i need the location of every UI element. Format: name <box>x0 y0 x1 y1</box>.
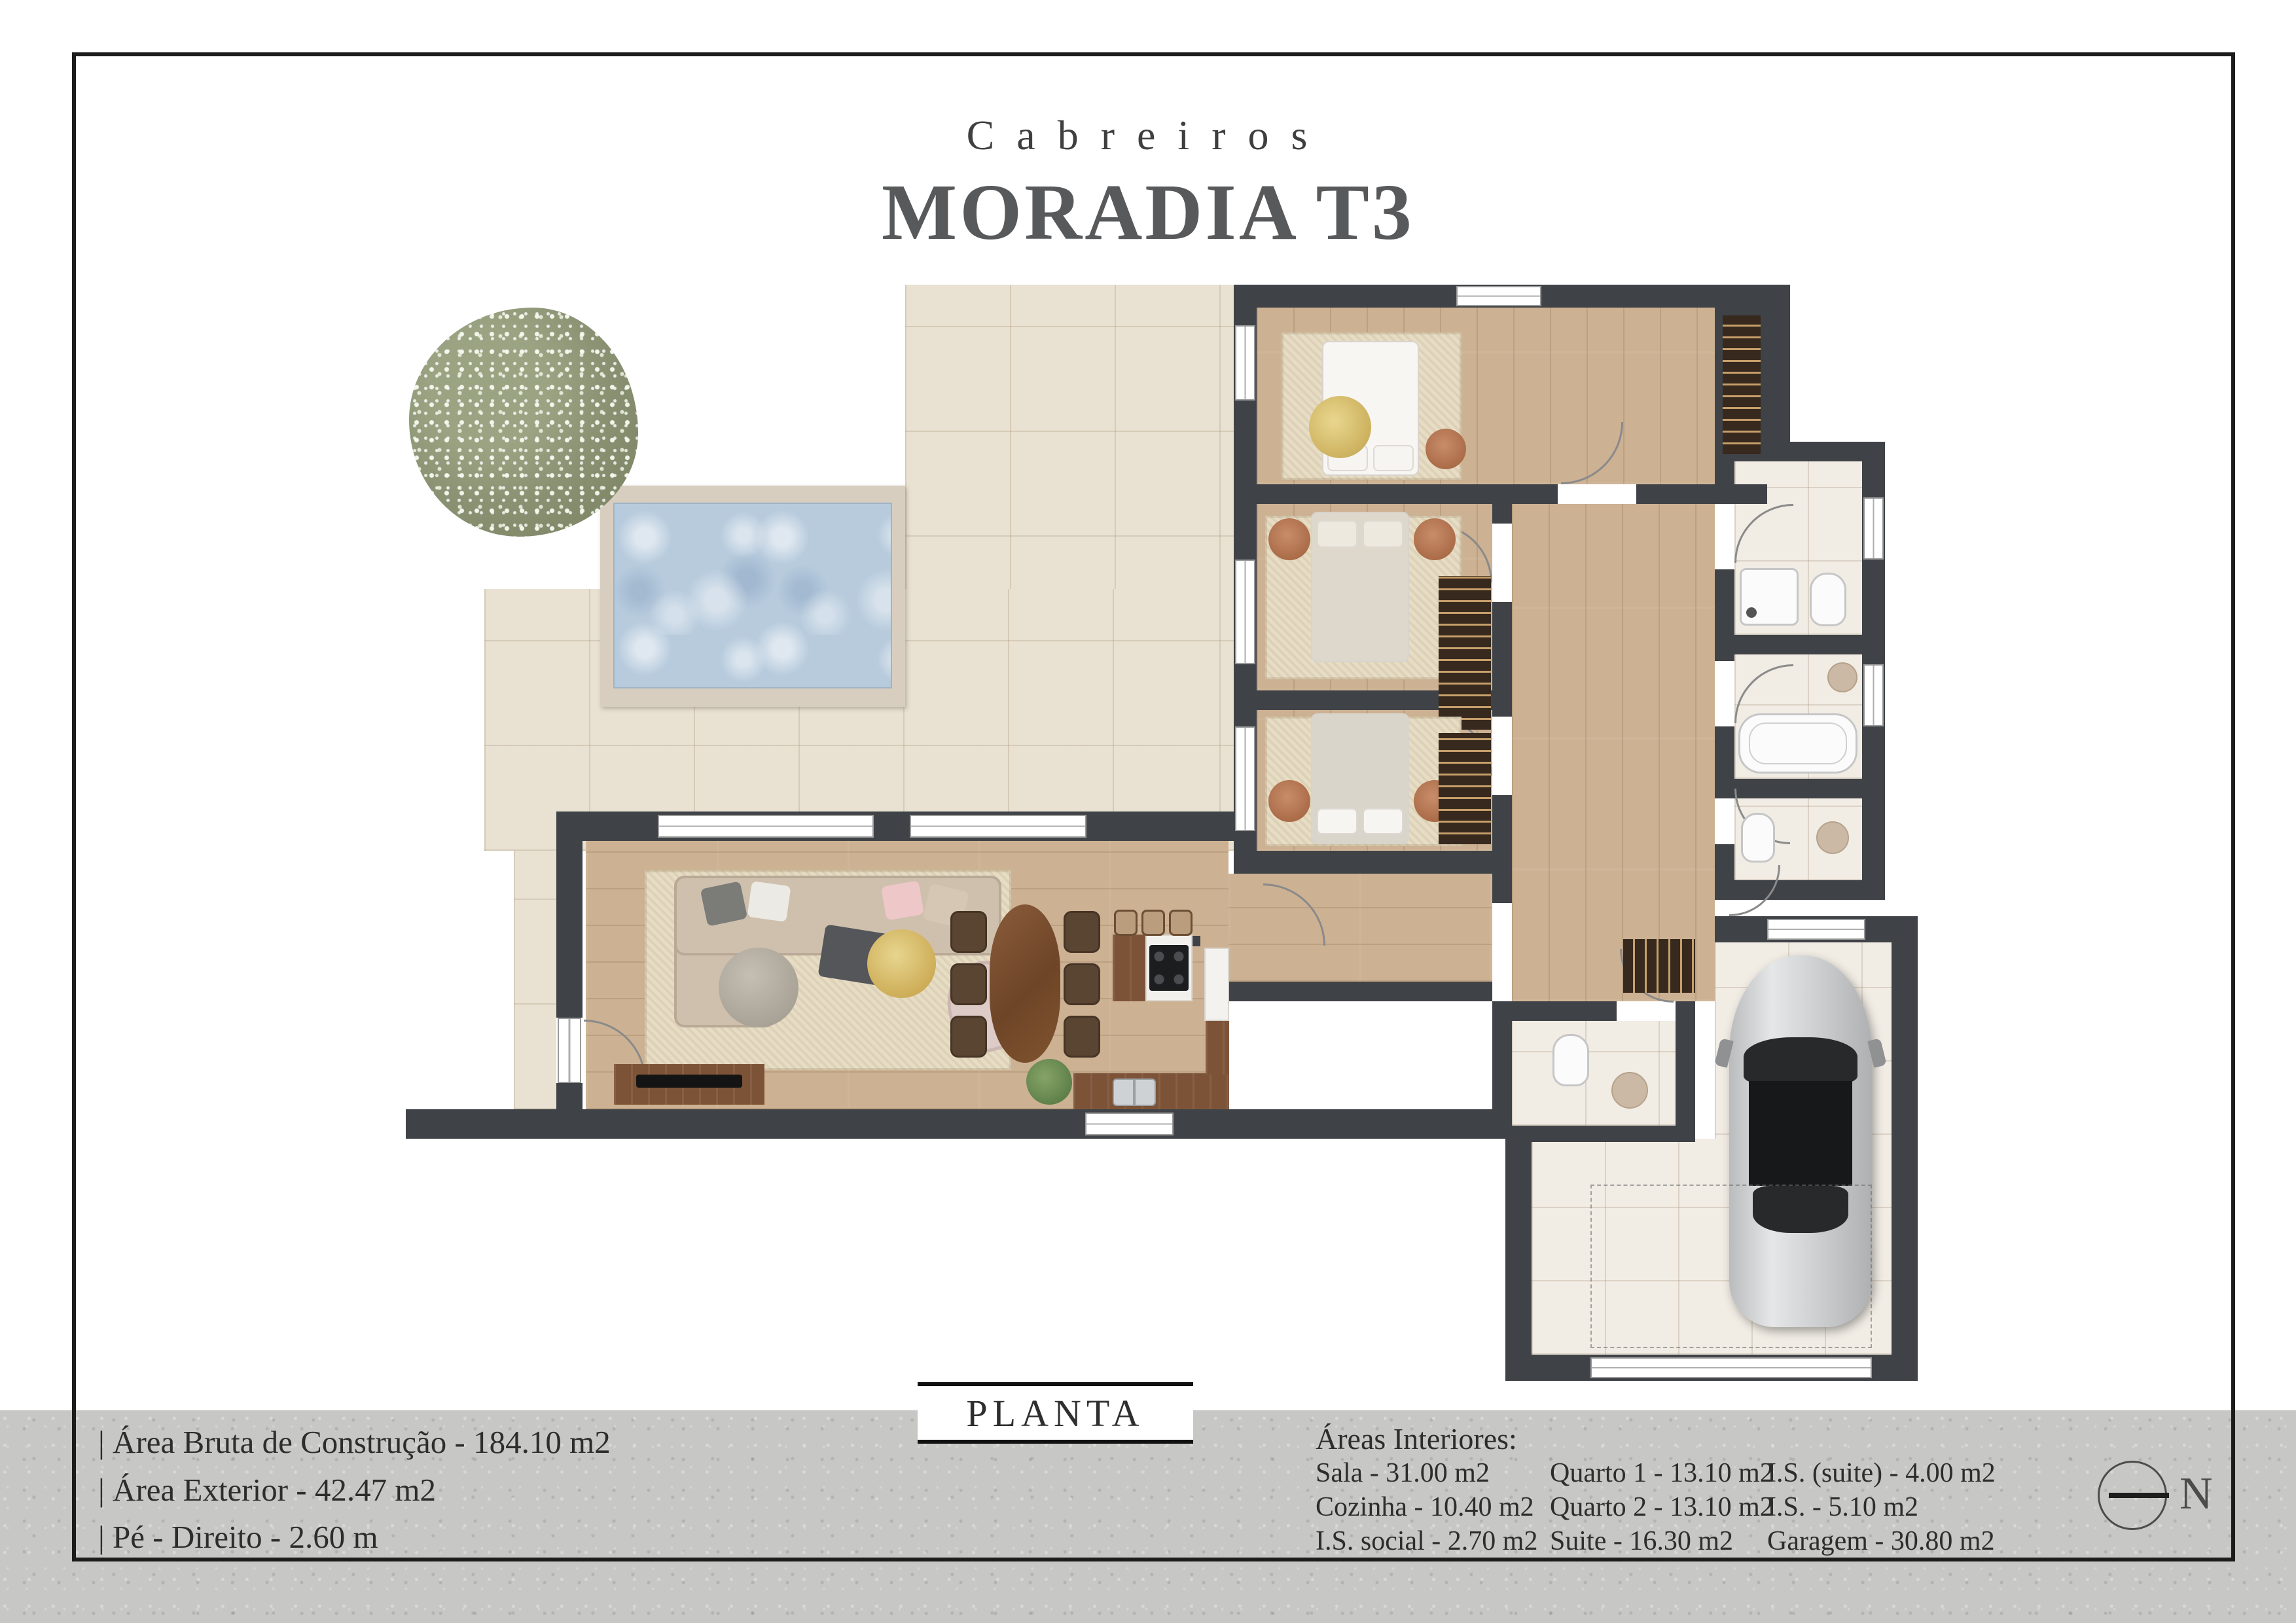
wc-floor <box>1512 1021 1676 1126</box>
sofa-cushion-white <box>747 881 791 922</box>
suite-wardrobe <box>1439 733 1491 844</box>
window-garage-north <box>1767 919 1865 940</box>
areas-column-2: Quarto 1 - 13.10 m2 Quarto 2 - 13.10 m2 … <box>1550 1456 1774 1558</box>
car-roof <box>1749 1081 1852 1186</box>
bedroom-1-wardrobe <box>1723 315 1761 454</box>
spec-gross-area: | Área Bruta de Construção - 184.10 m2 <box>98 1423 884 1463</box>
area-sala: Sala - 31.00 m2 <box>1316 1456 1537 1490</box>
wall-east-upper <box>1767 285 1790 442</box>
spec-exterior-area: | Área Exterior - 42.47 m2 <box>98 1471 884 1510</box>
toilet-bath1 <box>1810 573 1846 626</box>
wall-garage-left <box>1505 1139 1532 1355</box>
wc-basin <box>1611 1072 1648 1109</box>
wall-divider-bd1b <box>1636 484 1767 504</box>
dining-chair-r3 <box>1064 1016 1100 1058</box>
basin-suite-bath <box>1816 821 1849 854</box>
wall-suite-south <box>1257 851 1492 874</box>
patio-notch <box>1229 1001 1492 1109</box>
wall-hall-d <box>1492 1001 1512 1139</box>
entry-closet <box>1623 939 1695 993</box>
suite-pillow-right <box>1363 808 1403 834</box>
area-is: I.S. - 5.10 m2 <box>1767 1490 1996 1524</box>
north-label: N <box>2179 1468 2213 1520</box>
kitchen-island-wood <box>1113 935 1145 1001</box>
dining-chair-r2 <box>1064 963 1100 1005</box>
suite-pillow-left <box>1317 808 1357 834</box>
door-terrace-west <box>558 1018 581 1083</box>
dining-chair-l3 <box>950 1016 987 1058</box>
window-living-north-2 <box>910 815 1086 838</box>
wall-hall-a <box>1492 484 1512 524</box>
window-living-north-1 <box>658 815 874 838</box>
plant <box>1026 1059 1072 1105</box>
floor-plan <box>0 0 2296 1623</box>
bedroom-2-side-table-right <box>1414 518 1456 560</box>
kitchen-sink <box>1113 1079 1156 1106</box>
window-bedroom1-north <box>1456 286 1541 306</box>
suite-side-table-left <box>1268 780 1310 822</box>
area-is-suite: I.S. (suite) - 4.00 m2 <box>1767 1456 1996 1490</box>
area-suite: Suite - 16.30 m2 <box>1550 1524 1774 1558</box>
garage-floor-marking <box>1590 1185 1872 1348</box>
hallway-floor <box>1512 504 1715 1001</box>
window-living-south <box>1085 1113 1174 1135</box>
bedroom-1-pendant-light <box>1309 396 1371 458</box>
bar-stool-1 <box>1114 910 1138 936</box>
refrigerator <box>1204 948 1229 1021</box>
areas-column-3: I.S. (suite) - 4.00 m2 I.S. - 5.10 m2 Ga… <box>1767 1456 1996 1558</box>
tree-blossom-texture <box>409 308 638 537</box>
swimming-pool <box>613 503 892 688</box>
wc-toilet <box>1552 1034 1589 1086</box>
window-bedroom2-west <box>1235 560 1255 664</box>
wall-bathwest-c <box>1715 726 1734 798</box>
area-quarto-2: Quarto 2 - 13.10 m2 <box>1550 1490 1774 1524</box>
basin-bath2 <box>1827 662 1857 692</box>
areas-heading: Áreas Interiores: <box>1316 1421 1517 1456</box>
wall-divider-bd1 <box>1257 484 1558 504</box>
sofa-cushion-pink <box>881 880 924 920</box>
window-bath2-east <box>1863 664 1884 726</box>
wall-notch-top <box>1229 982 1492 1001</box>
north-compass-needle <box>2109 1493 2169 1498</box>
wall-wc-bottom <box>1512 1126 1676 1142</box>
window-bath1-east <box>1863 497 1884 560</box>
areas-column-1: Sala - 31.00 m2 Cozinha - 10.40 m2 I.S. … <box>1316 1456 1537 1558</box>
bedroom-2-pillow-right <box>1363 520 1403 548</box>
wall-bathwest-a <box>1715 461 1734 497</box>
shower-drain <box>1746 607 1757 618</box>
dining-chair-l2 <box>950 963 987 1005</box>
garage-door-opening <box>1590 1357 1872 1378</box>
window-suite-west <box>1235 726 1255 831</box>
bedroom-1-pillow-right <box>1373 445 1414 471</box>
wall-bath-div1 <box>1734 635 1862 654</box>
bedroom-2-side-table-left <box>1268 518 1310 560</box>
window-bedroom1-west <box>1235 325 1255 401</box>
wall-wc-top <box>1512 1001 1617 1021</box>
coffee-table-gold <box>867 929 936 998</box>
wall-hall-b <box>1492 602 1512 717</box>
wall-hall-c <box>1492 795 1512 903</box>
dining-chair-l1 <box>950 911 987 953</box>
area-garagem: Garagem - 30.80 m2 <box>1767 1524 1996 1558</box>
plan-label: PLANTA <box>966 1391 1144 1435</box>
terrace-side-strip <box>514 851 556 1109</box>
bedroom-1-side-table <box>1426 429 1466 469</box>
wall-living-south <box>406 1109 1492 1139</box>
bar-stool-3 <box>1169 910 1193 936</box>
area-quarto-1: Quarto 1 - 13.10 m2 <box>1550 1456 1774 1490</box>
plan-label-plate: PLANTA <box>918 1382 1193 1444</box>
cooktop <box>1149 945 1189 991</box>
area-is-social: I.S. social - 2.70 m2 <box>1316 1524 1537 1558</box>
coffee-table-marble <box>719 948 798 1027</box>
dining-chair-r1 <box>1064 911 1100 953</box>
door-arc-front <box>1729 865 1780 916</box>
area-cozinha: Cozinha - 10.40 m2 <box>1316 1490 1537 1524</box>
toilet-suite-bath <box>1741 813 1775 863</box>
wall-bathwest-b <box>1715 569 1734 661</box>
car-windshield <box>1744 1037 1857 1084</box>
bar-stool-2 <box>1141 910 1165 936</box>
bathtub-inner <box>1749 722 1847 764</box>
bedroom-2-wardrobe <box>1439 576 1491 730</box>
kitchen-counter-east <box>1206 1021 1229 1075</box>
wall-wc-right <box>1676 1001 1695 1142</box>
wall-living-west-a <box>556 841 583 1018</box>
spec-ceiling-height: | Pé - Direito - 2.60 m <box>98 1518 884 1558</box>
television <box>636 1075 742 1088</box>
dining-table <box>990 904 1060 1063</box>
wall-garage-right <box>1892 916 1918 1381</box>
bedroom-2-pillow-left <box>1317 520 1357 548</box>
